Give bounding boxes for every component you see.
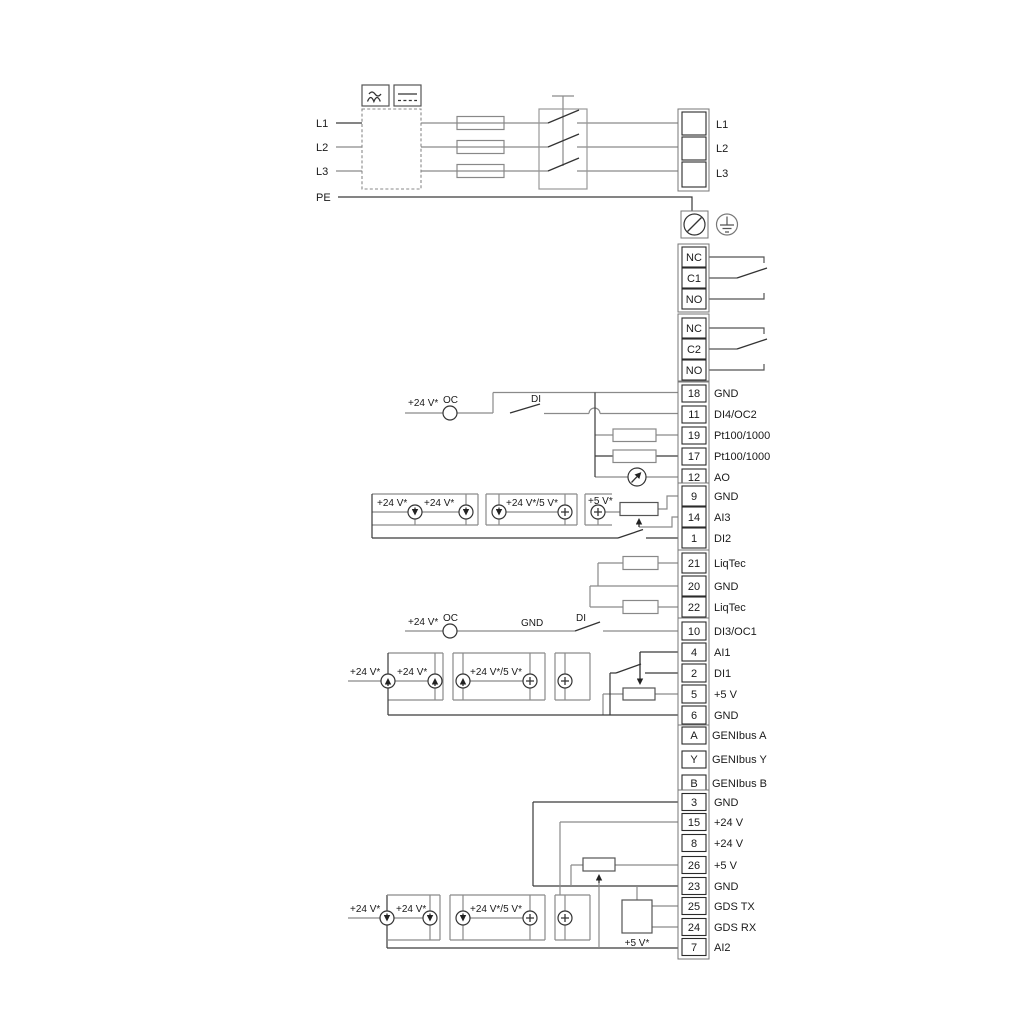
annotation-24v: +24 V* [396,904,426,915]
terminal-label: +5 V [714,860,738,872]
terminal-label: DI1 [714,668,731,680]
terminal-number: 12 [688,472,700,484]
phase-label-l1: L1 [316,118,328,130]
terminal-strip-g: +5 V* +24 V* +24 V* +24 V*/5 V* 3 15 8 2… [348,790,757,959]
terminal-number: 14 [688,512,700,524]
terminal-label: AO [714,472,730,484]
mains-section: L1 L2 L3 PE L1 L2 L3 [316,85,738,238]
terminal-number: 1 [691,533,697,545]
ai1-row-wires-gray [348,653,682,715]
relay2-wires [706,328,764,370]
terminal-number: 26 [688,860,700,872]
relay2-terminal: NC [686,323,702,335]
terminal-label: +5 V [714,689,738,701]
liqtec-resistor-2 [623,601,658,614]
terminal-number: 4 [691,647,697,659]
pt100-resistor-1 [613,429,656,442]
power-terminal-l3 [682,162,706,187]
liqtec-resistor-1 [623,557,658,570]
potentiometer-ai3 [620,503,658,516]
wiring-diagram-canvas: L1 L2 L3 PE L1 L2 L3 NC [0,0,1024,1024]
terminal-number: 15 [688,817,700,829]
terminal-label: AI2 [714,942,731,954]
terminal-number: 23 [688,881,700,893]
terminal-label: GND [714,881,739,893]
power-terminal-label: L3 [716,168,728,180]
terminal-label: Pt100/1000 [714,430,770,442]
relay1-wires [706,257,764,299]
terminal-strip-d: +24 V* OC GND DI +24 V* +24 V* +24 V*/5 … [348,613,757,725]
terminal-label: DI2 [714,533,731,545]
relay1-terminal: NO [686,294,703,306]
terminal-number: 20 [688,581,700,593]
terminal-strip-c: 21 20 22 LiqTec GND LiqTec [590,550,746,620]
terminal-label: Pt100/1000 [714,451,770,463]
di2-switch-blade [618,530,643,539]
oc-contact-icon [443,624,457,638]
power-terminal-label: L1 [716,119,728,131]
mains-wires-dark [336,123,692,211]
terminal-number: 18 [688,388,700,400]
relay1-terminal: NC [686,252,702,264]
terminal-number: 19 [688,430,700,442]
terminal-number: 7 [691,942,697,954]
annotation-24v: +24 V* [397,667,427,678]
pe-label: PE [316,192,331,204]
relay2-contact-blade [737,339,767,349]
strip-g-wires-gray [560,822,682,948]
terminal-number: 8 [691,838,697,850]
annotation-gnd: GND [521,618,543,629]
relay-1: NC C1 NO [678,244,767,312]
terminal-number: 3 [691,797,697,809]
terminal-number: B [690,778,697,790]
terminal-label: GDS TX [714,901,755,913]
relay2-terminal: C2 [687,344,701,356]
annotation-24v: +24 V* [424,498,454,509]
annotation-24v: +24 V* [408,617,438,628]
terminal-label: +24 V [714,838,744,850]
terminal-number: 6 [691,710,697,722]
terminal-number: Y [690,754,698,766]
annotation-24v-5v: +24 V*/5 V* [506,498,558,509]
mains-wires-gray [336,96,682,171]
annotation-di: DI [531,394,541,405]
terminal-strip-a: +24 V* OC DI 18 11 19 17 12 GND DI4/OC2 … [405,382,770,488]
potentiometer-ai2 [583,858,615,871]
wiring-diagram: L1 L2 L3 PE L1 L2 L3 NC [0,0,1024,1024]
phase-label-l2: L2 [316,142,328,154]
power-terminal-l1 [682,112,706,135]
gds-sensor-box [622,900,652,933]
dc-symbol-box [394,85,421,106]
terminal-label: GND [714,491,739,503]
terminal-number: A [690,730,698,742]
terminal-number: 5 [691,689,697,701]
terminal-label: AI3 [714,512,731,524]
relay2-terminal: NO [686,365,703,377]
relay1-contact-blade [737,268,767,278]
di1-switch-blade [616,664,641,673]
annotation-24v-5v: +24 V*/5 V* [470,904,522,915]
terminal-label: LiqTec [714,558,746,570]
genibus-block: A Y B GENIbus A GENIbus Y GENIbus B [678,725,767,793]
terminal-label: GND [714,581,739,593]
annotation-24v: +24 V* [377,498,407,509]
relay1-terminal: C1 [687,273,701,285]
terminal-label: GENIbus A [712,730,767,742]
annotation-oc: OC [443,613,458,624]
terminal-number: 10 [688,626,700,638]
terminal-label: GENIbus B [712,778,767,790]
di4-switch-blade [510,404,540,413]
terminal-label: DI4/OC2 [714,409,757,421]
terminal-number: 2 [691,668,697,680]
terminal-strip-b: +24 V* +24 V* +24 V*/5 V* +5 V* 9 14 1 G… [372,483,739,551]
annotation-24v: +24 V* [408,398,438,409]
power-terminal-l2 [682,137,706,160]
terminal-number: 21 [688,558,700,570]
terminal-label: LiqTec [714,602,746,614]
power-terminal-label: L2 [716,143,728,155]
annotation-5v: +5 V* [625,938,650,949]
oc-contact-icon [443,406,457,420]
terminal-number: 11 [688,409,699,421]
terminal-label: GENIbus Y [712,754,767,766]
terminal-number: 24 [688,922,700,934]
terminal-label: GDS RX [714,922,757,934]
terminal-label: +24 V [714,817,744,829]
terminal-label: GND [714,388,739,400]
phase-label-l3: L3 [316,166,328,178]
annotation-oc: OC [443,395,458,406]
potentiometer-ai1 [623,688,655,700]
terminal-label: DI3/OC1 [714,626,757,638]
annotation-24v: +24 V* [350,904,380,915]
pt100-resistor-2 [613,450,656,463]
annotation-24v-5v: +24 V*/5 V* [470,667,522,678]
terminal-number: 17 [688,451,700,463]
terminal-number: 22 [688,602,700,614]
terminal-number: 25 [688,901,700,913]
annotation-di: DI [576,613,586,624]
terminal-number: 9 [691,491,697,503]
emc-filter-box [362,109,421,189]
terminal-label: AI1 [714,647,731,659]
relay-2: NC C2 NO [678,314,767,381]
terminal-label: GND [714,710,739,722]
annotation-24v: +24 V* [350,667,380,678]
annotation-5v: +5 V* [588,496,613,507]
terminal-label: GND [714,797,739,809]
